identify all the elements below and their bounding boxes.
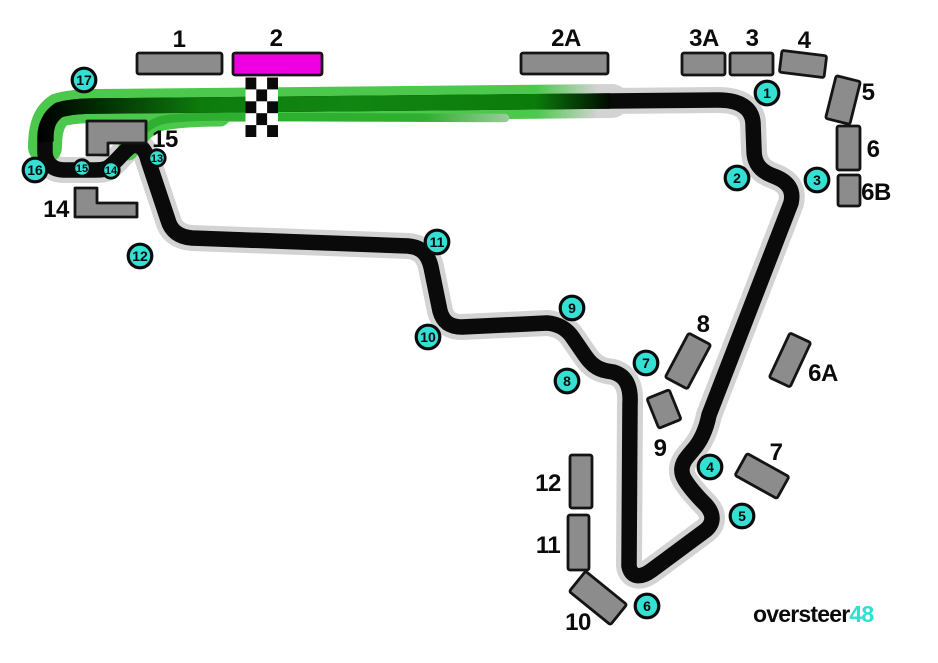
logo-text-cyan: 48 <box>849 601 874 627</box>
corner-marker-2: 2 <box>725 166 749 190</box>
corner-marker-1: 1 <box>755 81 779 105</box>
svg-text:8: 8 <box>563 373 571 389</box>
corner-marker-3: 3 <box>805 168 829 192</box>
corner-marker-5: 5 <box>730 504 754 528</box>
pit-lane-line <box>128 116 505 150</box>
grandstand-2-label: 2 <box>270 25 283 52</box>
corner-marker-8: 8 <box>555 369 579 393</box>
grandstand-12 <box>570 455 592 508</box>
grandstand-5 <box>826 76 861 125</box>
grandstand-6b <box>838 175 860 206</box>
grandstand-11 <box>568 515 589 570</box>
svg-text:2: 2 <box>733 170 741 186</box>
svg-text:12: 12 <box>132 248 148 264</box>
svg-text:15: 15 <box>76 163 88 175</box>
corner-marker-10: 10 <box>416 325 440 349</box>
corner-marker-11: 11 <box>425 230 449 254</box>
corner-marker-16: 16 <box>23 158 47 182</box>
grandstand-6 <box>837 126 860 170</box>
grandstand-3 <box>730 53 773 75</box>
svg-text:5: 5 <box>738 508 746 524</box>
grandstand-6a-label: 6A <box>808 360 838 387</box>
corner-marker-6: 6 <box>635 594 659 618</box>
grandstand-4-label: 4 <box>798 27 812 54</box>
grandstand-2a <box>521 53 608 74</box>
corner-marker-12: 12 <box>128 244 152 268</box>
svg-text:10: 10 <box>420 329 436 345</box>
grandstand-11-label: 11 <box>536 532 561 559</box>
svg-text:13: 13 <box>151 153 163 165</box>
grandstand-9 <box>647 390 681 429</box>
svg-text:4: 4 <box>706 459 714 475</box>
svg-text:16: 16 <box>27 162 43 178</box>
grandstand-1-label: 1 <box>173 26 186 53</box>
grandstand-9-label: 9 <box>654 435 667 462</box>
circuit-map: 1 2 2A 3A 3 4 5 6 6B 6A 8 9 7 12 11 10 1… <box>0 0 938 663</box>
grandstand-2a-label: 2A <box>551 25 581 52</box>
corner-marker-9: 9 <box>560 296 584 320</box>
corner-marker-17: 17 <box>72 68 96 92</box>
corner-marker-4: 4 <box>698 455 722 479</box>
grandstand-4 <box>779 50 826 77</box>
grandstand-1 <box>137 53 222 74</box>
svg-text:14: 14 <box>105 165 118 177</box>
circuit-map-canvas: 1 2 2A 3A 3 4 5 6 6B 6A 8 9 7 12 11 10 1… <box>0 0 938 663</box>
svg-text:17: 17 <box>76 72 92 88</box>
grandstand-10-label: 10 <box>565 609 591 636</box>
corner-marker-7: 7 <box>634 351 658 375</box>
grandstand-3a-label: 3A <box>689 25 719 52</box>
grandstand-6b-label: 6B <box>861 179 891 206</box>
grandstand-2-pit-building <box>233 53 322 75</box>
logo-oversteer48: oversteer48 <box>753 601 874 627</box>
start-finish-checkered-flag-icon <box>246 78 279 138</box>
svg-text:1: 1 <box>763 85 771 101</box>
svg-text:7: 7 <box>642 355 650 371</box>
svg-text:3: 3 <box>813 172 821 188</box>
logo-text-black: oversteer <box>753 601 850 627</box>
grandstand-12-label: 12 <box>535 470 561 497</box>
grandstand-8-label: 8 <box>697 311 710 338</box>
grandstand-8 <box>665 333 711 389</box>
corner-marker-15: 15 <box>74 160 90 176</box>
grandstand-6a <box>769 333 811 387</box>
grandstand-3-label: 3 <box>746 25 759 52</box>
svg-text:9: 9 <box>568 300 576 316</box>
corner-marker-14: 14 <box>103 162 119 178</box>
svg-text:6: 6 <box>643 598 651 614</box>
grandstand-7-label: 7 <box>770 439 783 466</box>
corner-marker-13: 13 <box>149 150 165 166</box>
grandstand-14 <box>75 188 137 217</box>
grandstand-3a <box>682 53 725 75</box>
grandstand-6-label: 6 <box>867 136 880 163</box>
grandstand-5-label: 5 <box>862 79 875 106</box>
svg-text:11: 11 <box>430 234 445 250</box>
grandstand-14-label: 14 <box>43 196 70 223</box>
